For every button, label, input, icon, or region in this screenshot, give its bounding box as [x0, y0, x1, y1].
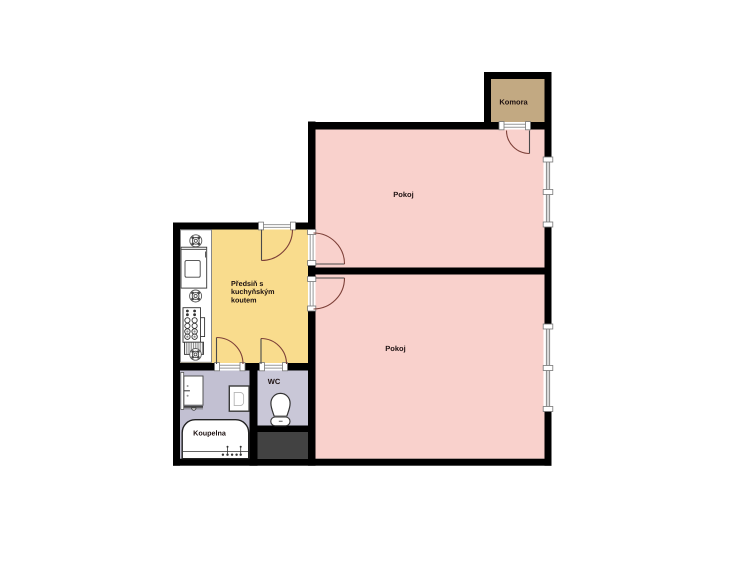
svg-text:Pokoj: Pokoj: [393, 190, 413, 199]
svg-text:kuchyňským: kuchyňským: [231, 287, 275, 296]
svg-text:Pokoj: Pokoj: [385, 344, 405, 353]
svg-text:koutem: koutem: [231, 296, 257, 305]
svg-text:Komora: Komora: [499, 98, 528, 107]
svg-text:Koupelna: Koupelna: [193, 429, 227, 438]
svg-text:WC: WC: [268, 377, 281, 386]
